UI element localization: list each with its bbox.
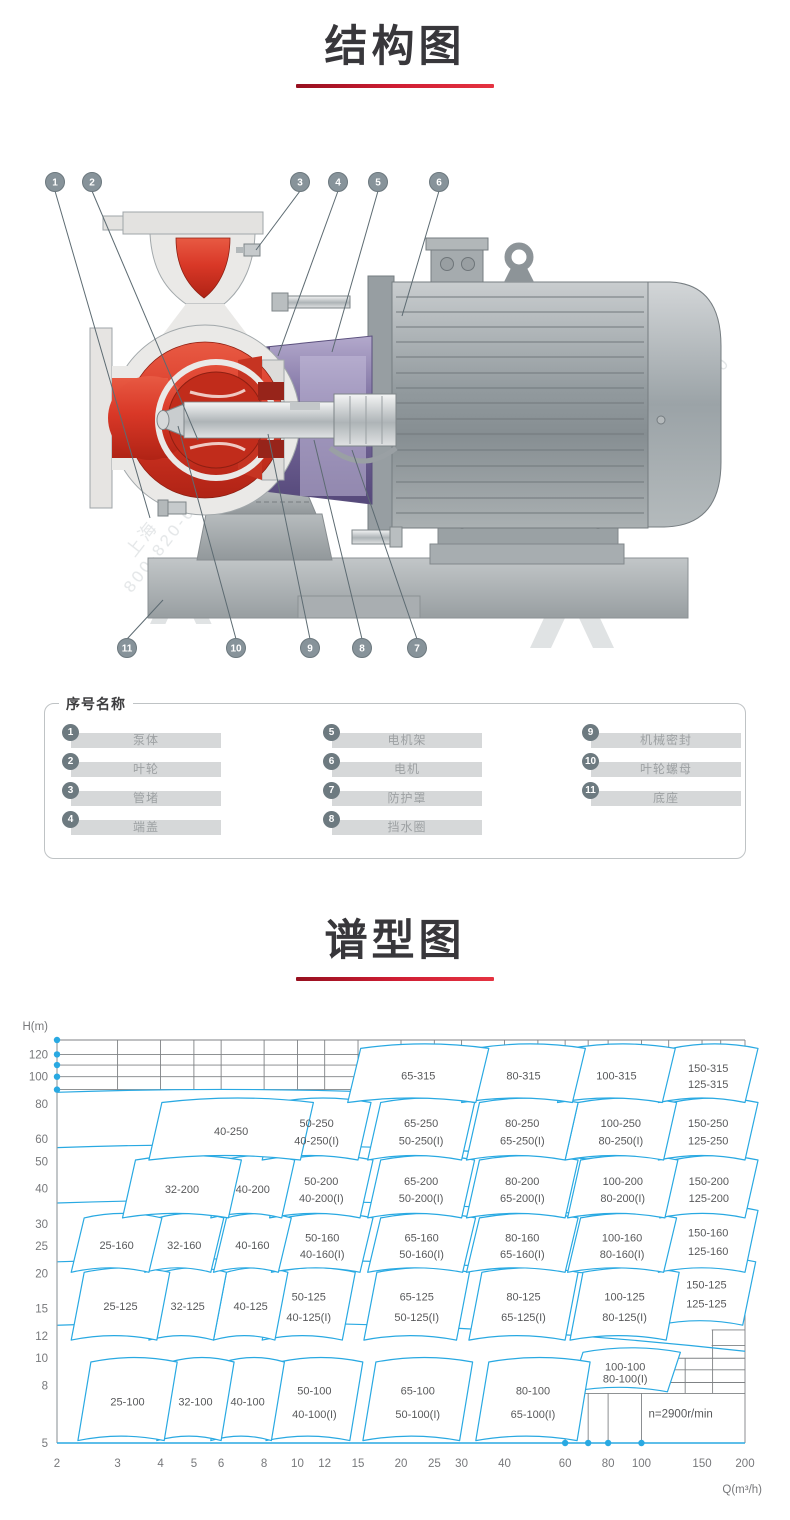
chart-region-label: 100-100 xyxy=(605,1362,645,1374)
legend-item: 机械密封9 xyxy=(591,733,741,748)
x-tick-label: 60 xyxy=(559,1458,572,1470)
chart-region-label: 100-160 xyxy=(602,1233,642,1245)
chart-region-label: 65-250 xyxy=(404,1118,438,1130)
axis-dot xyxy=(54,1073,60,1079)
callout-number: 4 xyxy=(335,178,341,189)
chart-region-label: 100-125 xyxy=(604,1292,644,1304)
x-tick-label: 4 xyxy=(157,1458,164,1470)
motor-screw xyxy=(657,416,665,424)
x-tick-label: 15 xyxy=(352,1458,365,1470)
y-axis-label: H(m) xyxy=(22,1021,48,1033)
baseplate xyxy=(148,558,688,618)
y-tick-label: 80 xyxy=(35,1099,48,1111)
chart-region-label: 80-125(I) xyxy=(602,1312,647,1324)
axis-dot xyxy=(54,1062,60,1068)
lifting-eye xyxy=(504,246,534,282)
chart-region-label: 40-200 xyxy=(236,1184,270,1196)
axis-dot xyxy=(54,1086,60,1092)
structure-section-title: 结构图 xyxy=(0,12,790,74)
chart-region-label: 50-160 xyxy=(305,1233,339,1245)
chart-region-label: 50-160(I) xyxy=(399,1249,444,1261)
spectrum-title-underline xyxy=(296,977,494,981)
x-tick-label: 2 xyxy=(54,1458,60,1470)
y-tick-label: 40 xyxy=(35,1184,48,1196)
legend-item: 泵体1 xyxy=(71,733,221,748)
legend-item: 电机6 xyxy=(332,762,482,777)
y-tick-label: 60 xyxy=(35,1134,48,1146)
x-tick-label: 10 xyxy=(291,1458,304,1470)
junction-box xyxy=(426,238,488,282)
chart-region-label: 25-100 xyxy=(110,1396,144,1408)
chart-region-label: 125-250 xyxy=(688,1135,728,1147)
chart-region-label: 25-160 xyxy=(99,1240,133,1252)
chart-region-label: 65-125 xyxy=(400,1292,434,1304)
legend-item-number: 1 xyxy=(62,724,79,741)
x-tick-label: 25 xyxy=(428,1458,441,1470)
chart-region-label: 80-315 xyxy=(506,1070,540,1082)
y-tick-label: 20 xyxy=(35,1268,48,1280)
chart-region-label: 65-250(I) xyxy=(500,1135,545,1147)
y-tick-label: 8 xyxy=(42,1381,48,1393)
chart-region-label: 80-200 xyxy=(505,1176,539,1188)
chart-region-label: 50-100(I) xyxy=(395,1409,440,1421)
chart-region-label: 80-125 xyxy=(506,1292,540,1304)
legend-item: 管堵3 xyxy=(71,791,221,806)
chart-region-label: 80-250 xyxy=(505,1118,539,1130)
chart-region-label: 50-125(I) xyxy=(394,1312,439,1324)
y-tick-label: 5 xyxy=(42,1438,48,1450)
chart-region-label: 50-200 xyxy=(304,1176,338,1188)
legend-item-number: 9 xyxy=(582,724,599,741)
chart-region-label: 40-125 xyxy=(234,1301,268,1313)
x-axis-label: Q(m³/h) xyxy=(722,1484,762,1496)
legend-item: 电机架5 xyxy=(332,733,482,748)
legend-item: 叶轮螺母10 xyxy=(591,762,741,777)
mechanical-seal xyxy=(258,382,284,400)
chart-region-label: 50-200(I) xyxy=(399,1193,444,1205)
chart-region-label: 100-315 xyxy=(596,1070,636,1082)
y-tick-label: 120 xyxy=(29,1049,48,1061)
legend-item-number: 3 xyxy=(62,782,79,799)
chart-region-label: 65-200 xyxy=(404,1176,438,1188)
x-tick-label: 20 xyxy=(395,1458,408,1470)
callout-number: 5 xyxy=(375,178,381,189)
legend-item-name: 挡水圈 xyxy=(332,820,482,835)
legend-item-name: 叶轮 xyxy=(71,762,221,777)
chart-region-label: 65-160 xyxy=(404,1233,438,1245)
legend-item-name: 电机架 xyxy=(332,733,482,748)
chart-region-label: 150-200 xyxy=(689,1176,729,1188)
chart-region xyxy=(364,1268,470,1340)
legend-item: 叶轮2 xyxy=(71,762,221,777)
pipe-plug xyxy=(244,244,260,256)
legend-item-name: 泵体 xyxy=(71,733,221,748)
x-tick-label: 40 xyxy=(498,1458,511,1470)
chart-region xyxy=(363,1358,473,1441)
chart-region-label: 40-200(I) xyxy=(299,1193,344,1205)
x-tick-label: 80 xyxy=(602,1458,615,1470)
chart-region-label: 125-315 xyxy=(688,1079,728,1091)
chart-region-label: 65-125(I) xyxy=(501,1312,546,1324)
legend-item: 防护罩7 xyxy=(332,791,482,806)
legend-item-name: 管堵 xyxy=(71,791,221,806)
x-tick-label: 100 xyxy=(632,1458,651,1470)
chart-region-label: 125-160 xyxy=(688,1246,728,1258)
y-tick-label: 30 xyxy=(35,1219,48,1231)
pump-structure-diagram: 上海 800-820-6570 上海 800-820-6570 上海 800-8… xyxy=(0,150,790,670)
chart-region-label: 50-125 xyxy=(292,1292,326,1304)
callout-leader-line xyxy=(278,191,338,356)
y-tick-label: 12 xyxy=(35,1331,48,1343)
chart-region-label: 40-160 xyxy=(235,1240,269,1252)
y-tick-label: 10 xyxy=(35,1353,48,1365)
callout-number: 6 xyxy=(436,178,442,189)
drain-plug xyxy=(166,502,186,514)
legend-item-name: 叶轮螺母 xyxy=(591,762,741,777)
legend-item: 底座11 xyxy=(591,791,741,806)
axis-dot xyxy=(638,1440,644,1446)
motor xyxy=(368,238,721,540)
discharge-flange xyxy=(123,212,263,234)
axis-dot xyxy=(54,1051,60,1057)
legend-item-number: 7 xyxy=(323,782,340,799)
chart-region-label: 80-160 xyxy=(505,1233,539,1245)
axis-dot xyxy=(54,1037,60,1043)
y-tick-label: 15 xyxy=(35,1304,48,1316)
coupling xyxy=(334,394,396,446)
legend-item-name: 电机 xyxy=(332,762,482,777)
chart-region-label: 32-125 xyxy=(171,1301,205,1313)
legend-item-name: 端盖 xyxy=(71,820,221,835)
axis-dot xyxy=(585,1440,591,1446)
chart-region-label: 100-200 xyxy=(603,1176,643,1188)
chart-region-label: 50-250 xyxy=(299,1118,333,1130)
chart-region-label: 125-200 xyxy=(689,1193,729,1205)
callout-number: 10 xyxy=(230,644,242,655)
chart-region-label: 40-250 xyxy=(214,1126,248,1138)
chart-region-label: 40-100(I) xyxy=(292,1409,337,1421)
structure-title-underline xyxy=(296,84,494,88)
axis-dot xyxy=(605,1440,611,1446)
y-tick-label: 100 xyxy=(29,1072,48,1084)
chart-region-label: 65-100(I) xyxy=(511,1409,556,1421)
legend-item-number: 5 xyxy=(323,724,340,741)
speed-annotation: n=2900r/min xyxy=(649,1409,713,1421)
legend-item-number: 4 xyxy=(62,811,79,828)
callout-number: 2 xyxy=(89,178,95,189)
chart-region-label: 150-160 xyxy=(688,1228,728,1240)
chart-region-label: 50-100 xyxy=(297,1385,331,1397)
callout-number: 11 xyxy=(122,644,133,655)
spectrum-section-title: 谱型图 xyxy=(0,906,790,968)
chart-region-label: 65-100 xyxy=(401,1385,435,1397)
x-tick-label: 150 xyxy=(692,1458,711,1470)
chart-region-label: 40-160(I) xyxy=(300,1249,345,1261)
callout-number: 3 xyxy=(297,178,303,189)
legend-item-name: 底座 xyxy=(591,791,741,806)
legend-box: 序号名称 泵体1叶轮2管堵3端盖4电机架5电机6防护罩7挡水圈8机械密封9叶轮螺… xyxy=(44,703,746,859)
chart-region-label: 32-100 xyxy=(178,1396,212,1408)
legend-item-name: 防护罩 xyxy=(332,791,482,806)
chart-region-label: 80-250(I) xyxy=(599,1135,644,1147)
legend-item-number: 2 xyxy=(62,753,79,770)
callout-number: 9 xyxy=(307,644,313,655)
chart-region-label: 80-100 xyxy=(516,1385,550,1397)
chart-region-label: 65-160(I) xyxy=(500,1249,545,1261)
legend-item-number: 8 xyxy=(323,811,340,828)
chart-region-label: 32-200 xyxy=(165,1184,199,1196)
chart-region-label: 125-125 xyxy=(686,1299,726,1311)
x-tick-label: 5 xyxy=(191,1458,197,1470)
axis-dot xyxy=(562,1440,568,1446)
chart-region-label: 50-250(I) xyxy=(399,1135,444,1147)
x-tick-label: 12 xyxy=(318,1458,331,1470)
chart-region-label: 40-250(I) xyxy=(294,1135,339,1147)
chart-region-label: 100-250 xyxy=(601,1118,641,1130)
callout-number: 7 xyxy=(414,644,420,655)
x-tick-label: 3 xyxy=(114,1458,120,1470)
callout-number: 8 xyxy=(359,644,365,655)
chart-region-label: 40-100 xyxy=(230,1396,264,1408)
callout-number: 1 xyxy=(52,178,58,189)
legend-item-name: 机械密封 xyxy=(591,733,741,748)
chart-region-label: 32-160 xyxy=(167,1240,201,1252)
x-tick-label: 200 xyxy=(735,1458,754,1470)
legend-item-number: 11 xyxy=(582,782,599,799)
motor-body xyxy=(392,282,648,528)
y-tick-label: 50 xyxy=(35,1156,48,1168)
legend-title: 序号名称 xyxy=(59,694,133,714)
x-tick-label: 6 xyxy=(218,1458,224,1470)
chart-region-label: 80-100(I) xyxy=(603,1373,648,1385)
chart-region-label: 25-125 xyxy=(103,1301,137,1313)
chart-region xyxy=(469,1268,578,1340)
motor-end-cap xyxy=(648,282,721,527)
x-tick-label: 8 xyxy=(261,1458,267,1470)
page: 结构图 xyxy=(0,0,790,1520)
chart-region-label: 65-315 xyxy=(401,1070,435,1082)
y-tick-label: 25 xyxy=(35,1241,48,1253)
x-tick-label: 30 xyxy=(455,1458,468,1470)
chart-region-label: 150-315 xyxy=(688,1063,728,1075)
chart-region xyxy=(476,1358,590,1441)
chart-region-label: 80-160(I) xyxy=(600,1249,645,1261)
chart-region-label: 65-200(I) xyxy=(500,1193,545,1205)
legend-item-number: 10 xyxy=(582,753,599,770)
chart-region-label: 150-125 xyxy=(686,1280,726,1292)
chart-region xyxy=(570,1268,679,1340)
chart-region-label: 40-125(I) xyxy=(286,1312,331,1324)
chart-region-label: 80-200(I) xyxy=(600,1193,645,1205)
legend-item: 挡水圈8 xyxy=(332,820,482,835)
chart-region-label: 150-250 xyxy=(688,1118,728,1130)
legend-item: 端盖4 xyxy=(71,820,221,835)
legend-item-number: 6 xyxy=(323,753,340,770)
spectrum-chart: 65-31580-315100-315150-315125-31540-2505… xyxy=(0,1010,790,1520)
